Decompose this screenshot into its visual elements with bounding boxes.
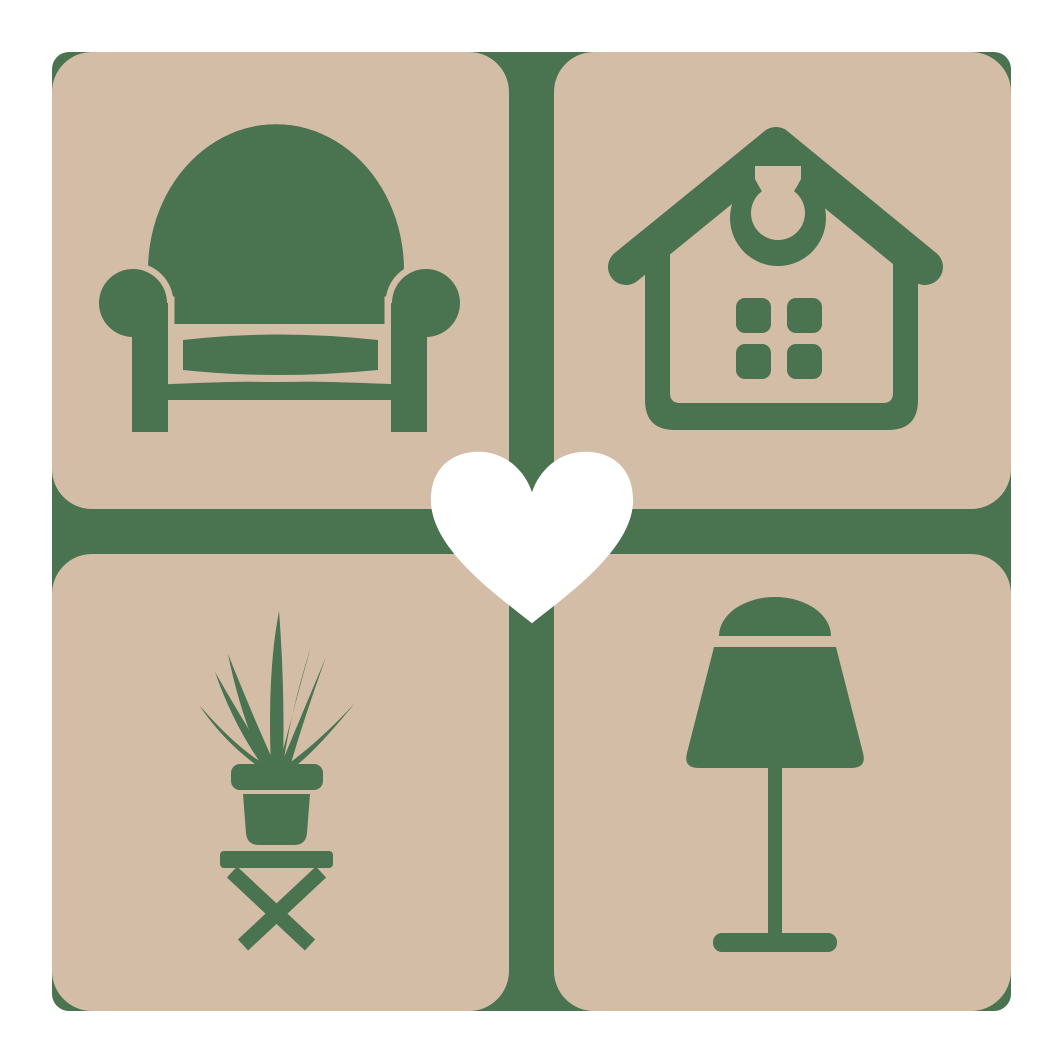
heart-icon <box>423 446 641 628</box>
tile-armchair <box>52 52 509 509</box>
logo <box>52 52 1011 1011</box>
logo-canvas <box>0 0 1063 1063</box>
armchair-icon <box>52 52 509 509</box>
house-icon <box>554 52 1011 509</box>
tile-house <box>554 52 1011 509</box>
